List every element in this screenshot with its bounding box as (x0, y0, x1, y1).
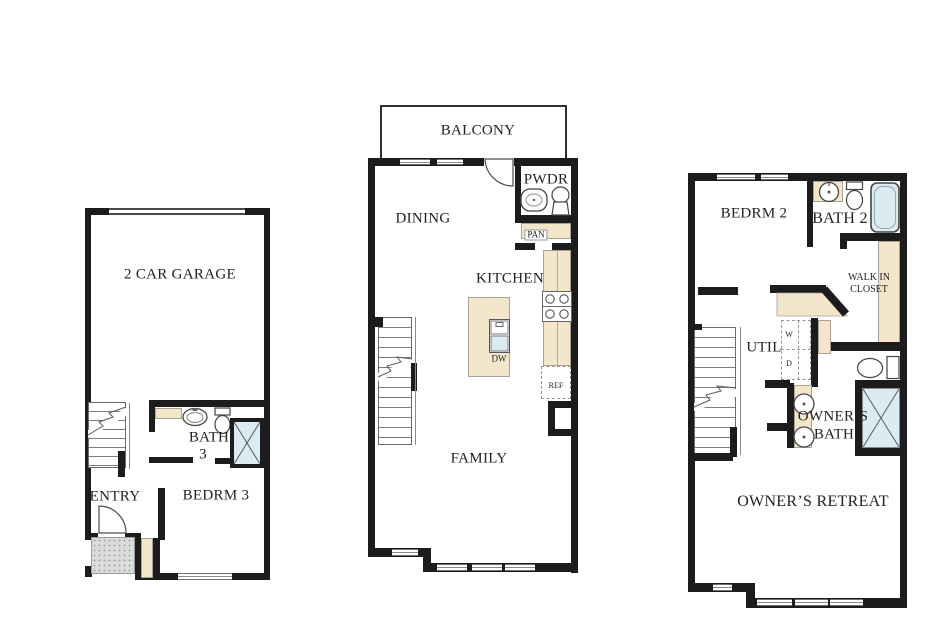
floorplan-image: 2 CAR GARAGE BATH 3 ENTRY BEDRM 3 BALCON… (0, 0, 940, 643)
shower-fixture (230, 418, 264, 468)
wall-segment (153, 538, 160, 580)
window (757, 599, 792, 606)
stair-newel (411, 363, 417, 391)
washer-label: W (785, 331, 793, 339)
owners-retreat-label: OWNER’S RETREAT (737, 494, 889, 510)
utility-label: UTIL (746, 341, 781, 356)
bedroom3-label: BEDRM 3 (183, 489, 250, 504)
bath2-label: BATH 2 (812, 211, 868, 227)
wall-segment (831, 342, 901, 351)
dryer-label: D (786, 360, 792, 368)
family-label: FAMILY (451, 452, 508, 467)
garage-label: 2 CAR GARAGE (124, 268, 236, 283)
sink-fixture (520, 188, 548, 214)
wall-segment (515, 243, 535, 250)
window (400, 159, 430, 165)
entry-closet-shelf (141, 538, 153, 578)
washer-dryer-fixture (781, 320, 811, 380)
entry-label: ENTRY (90, 490, 141, 505)
stove-fixture (542, 291, 572, 322)
washer-dryer-divider (798, 320, 799, 380)
window (437, 564, 467, 571)
third-floor-plan: W D (688, 173, 907, 608)
stair-stringer-line (415, 317, 416, 445)
walkin-closet-label-line1: WALK IN (848, 273, 890, 283)
stair-newel (118, 451, 125, 477)
stair-stringer-line (740, 327, 741, 455)
walkin-closet-label-line2: CLOSET (850, 285, 888, 295)
window (392, 549, 418, 556)
bedroom2-label: BEDRM 2 (721, 207, 788, 222)
refrigerator-label: REF (549, 382, 564, 390)
wall-segment (158, 488, 165, 540)
stair-stringer-line (129, 403, 130, 469)
dining-label: DINING (395, 212, 450, 227)
porch-stoop (91, 537, 135, 574)
wall-segment (693, 453, 733, 461)
sink-fixture (181, 406, 209, 428)
vanity-counter (155, 408, 182, 419)
washer-dryer-divider (781, 349, 811, 350)
wall-segment (811, 318, 818, 387)
entry-door-swing (98, 505, 126, 534)
wall-segment (368, 158, 375, 555)
balcony-label: BALCONY (441, 124, 516, 139)
toilet-fixture (856, 355, 901, 381)
window (713, 584, 732, 591)
window (437, 159, 463, 165)
kitchen-label: KITCHEN (476, 272, 544, 287)
wall-segment (149, 400, 270, 407)
window (795, 599, 828, 606)
dishwasher-label: DW (492, 355, 507, 364)
bath3-number-label: 3 (199, 448, 207, 463)
wall-segment (264, 208, 270, 580)
toilet-fixture (549, 186, 572, 216)
powder-label: PWDR (524, 173, 569, 188)
wall-segment (515, 215, 578, 223)
wall-segment (375, 317, 383, 327)
window (178, 573, 232, 580)
wall-segment (548, 429, 572, 436)
stairs-break-line (378, 317, 412, 445)
first-floor-plan: 2 CAR GARAGE BATH 3 ENTRY BEDRM 3 (85, 208, 270, 580)
owners-bath-label-line1: OWNER’S (798, 410, 868, 425)
owners-bath-label-line2: BATH (814, 428, 854, 443)
counter (818, 320, 831, 354)
balcony-door-swing (484, 158, 514, 188)
window (505, 564, 535, 571)
window (830, 599, 863, 606)
wall-segment (693, 324, 702, 330)
wall-segment (855, 448, 901, 456)
wall-segment (149, 457, 193, 463)
second-floor-plan: BALCONY PWDR PAN (368, 103, 578, 573)
window (472, 564, 502, 571)
pantry-label: PAN (524, 230, 547, 241)
sink-dishwasher-fixture (489, 319, 510, 353)
garage-door (109, 208, 245, 215)
bath3-label: BATH (189, 431, 229, 446)
wall-segment (552, 243, 578, 250)
